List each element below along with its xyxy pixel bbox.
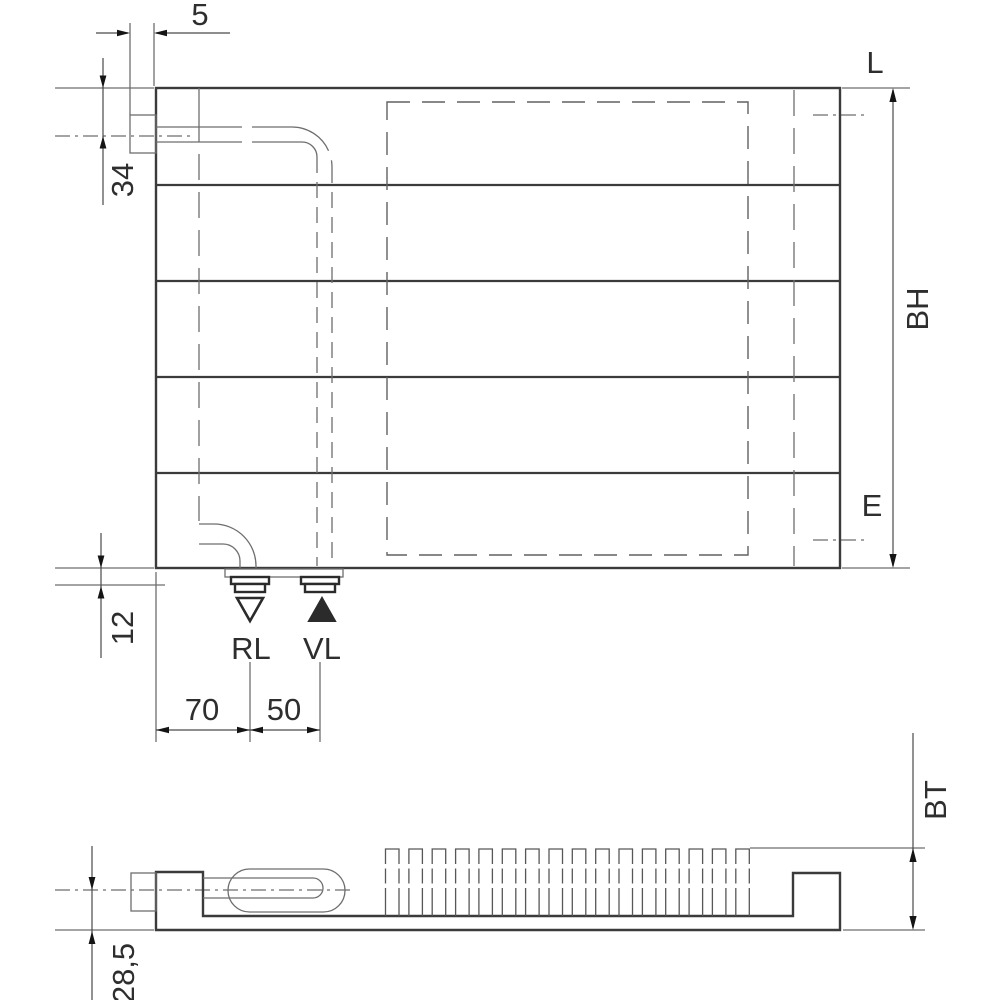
- level-label-L: L: [866, 45, 883, 80]
- supply-flow-triangle-icon: [309, 598, 335, 621]
- panel-lines: [156, 185, 840, 473]
- dim-BT-label: BT: [918, 780, 953, 820]
- radiator-technical-drawing: RL VL L E 5 34 12: [0, 0, 1000, 1000]
- dim-12-label: 12: [105, 611, 140, 645]
- convector-fins: [386, 849, 750, 916]
- dim-connection-spacing: 70 50: [156, 692, 320, 733]
- hidden-lines: [199, 88, 794, 566]
- fin-line-break-band: [384, 884, 751, 889]
- profile-bracket-tab: [131, 873, 156, 911]
- bottom-connections: [225, 569, 343, 592]
- level-label-E: E: [862, 488, 883, 523]
- front-view: RL VL L E: [55, 23, 910, 742]
- dim-70-label: 70: [185, 692, 219, 727]
- radiator-profile-outline: [156, 872, 840, 930]
- dim-5-label: 5: [191, 0, 208, 32]
- supply-pipe-elbow-top: [156, 127, 332, 167]
- wall-bracket-tab: [130, 115, 156, 153]
- convector-core-hidden-outline: [387, 102, 748, 555]
- return-pipe-elbow-bottom: [199, 524, 256, 568]
- dim-28-5-label: 28,5: [106, 943, 141, 1000]
- radiator-body-outline: [156, 88, 840, 568]
- internal-piping: [156, 127, 332, 568]
- dim-pipe-center-depth: 28,5: [89, 846, 141, 1000]
- dim-stub-height: 12: [98, 533, 140, 658]
- supply-stub-body: [305, 584, 335, 592]
- fin-line-break-band: [384, 864, 751, 869]
- dim-build-height: BH: [889, 88, 935, 568]
- front-dimensions: 5 34 12 70 50: [96, 0, 935, 733]
- supply-flow-label: VL: [303, 631, 341, 666]
- dim-build-depth: BT: [909, 733, 953, 930]
- return-stub-body: [235, 584, 265, 592]
- bottom-view: [55, 848, 925, 930]
- dim-34-label: 34: [105, 163, 140, 197]
- dim-top-connection: 34: [100, 58, 140, 205]
- dim-50-label: 50: [267, 692, 301, 727]
- connection-base-plate: [225, 569, 343, 577]
- extension-lines: [55, 23, 910, 742]
- bottom-extension-lines: [55, 848, 925, 930]
- dim-BH-label: BH: [900, 287, 935, 330]
- return-flow-triangle-icon: [237, 598, 263, 621]
- pipe-u-bend: [203, 878, 323, 898]
- dim-bracket-offset: 5: [96, 0, 230, 36]
- return-flow-label: RL: [231, 631, 271, 666]
- drawing-canvas: RL VL L E 5 34 12: [0, 0, 1000, 1000]
